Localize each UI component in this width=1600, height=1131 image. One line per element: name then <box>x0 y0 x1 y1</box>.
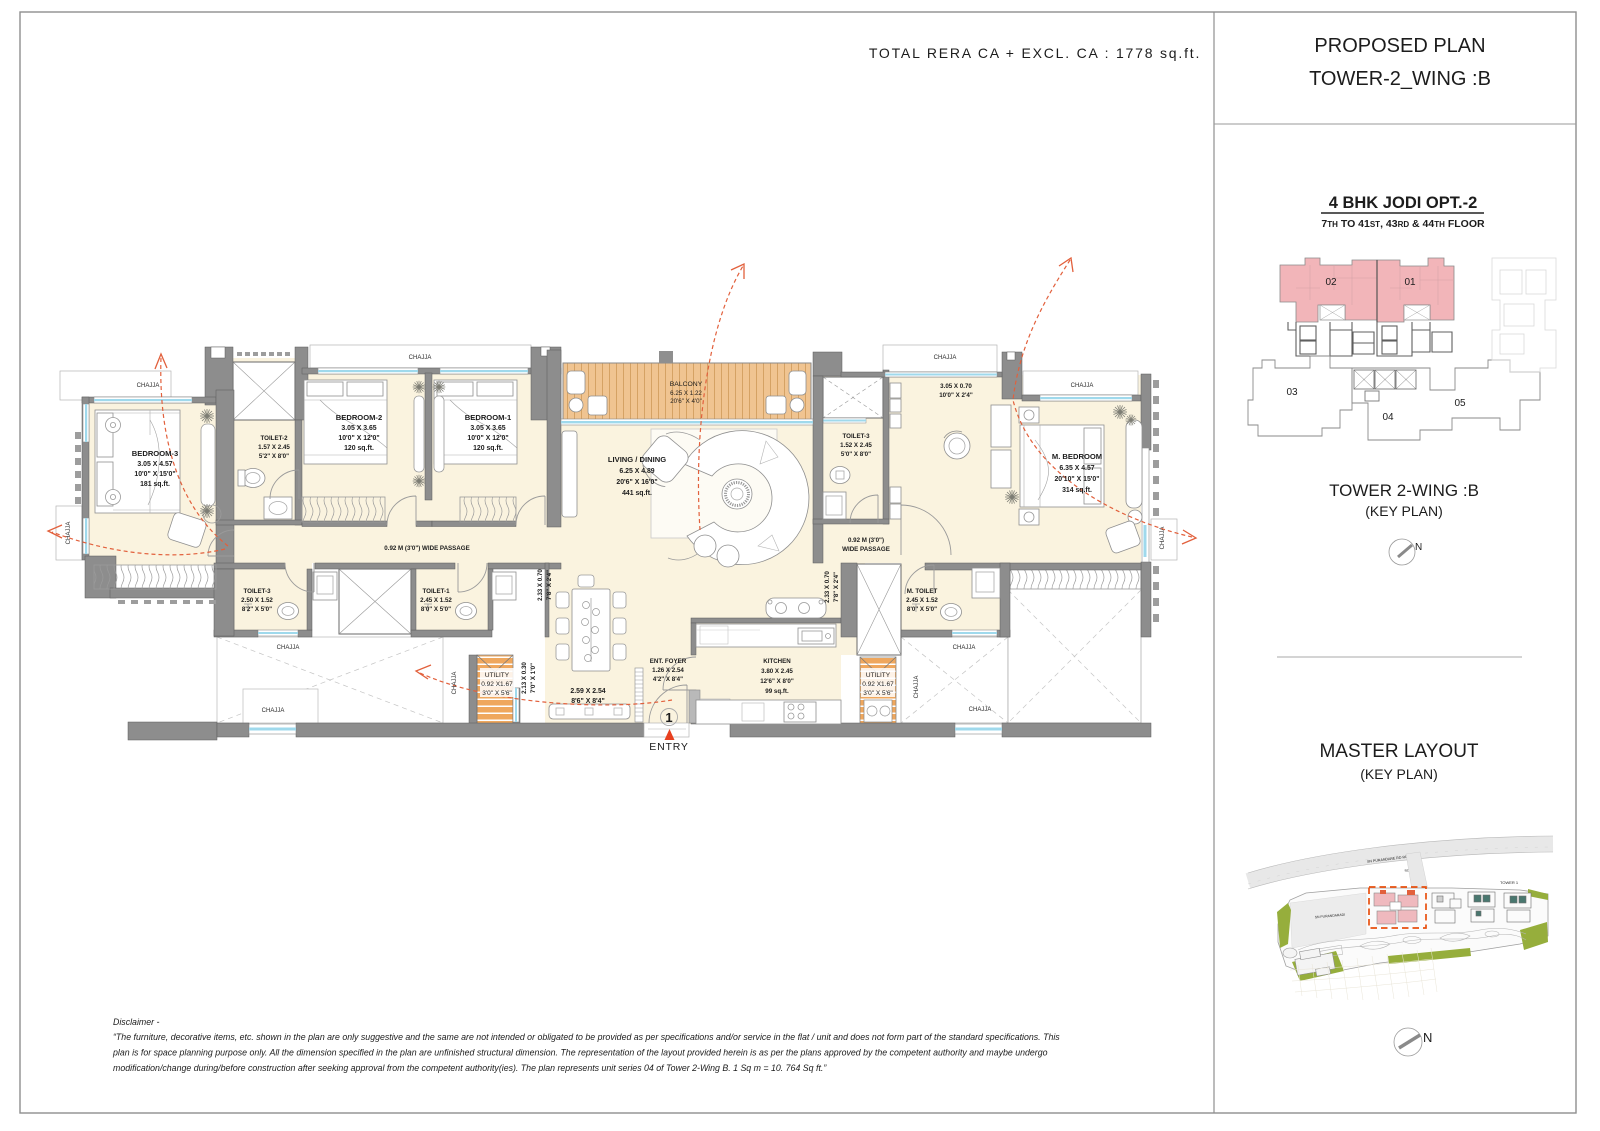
svg-text:0.92 M (3'0"): 0.92 M (3'0") <box>848 537 884 544</box>
svg-text:20'6" X 4'0": 20'6" X 4'0" <box>670 398 702 405</box>
svg-text:“The furniture, decorative ite: “The furniture, decorative items, etc. s… <box>113 1032 1060 1042</box>
svg-text:CHAJJA: CHAJJA <box>1071 383 1094 389</box>
svg-text:441 sq.ft.: 441 sq.ft. <box>622 490 652 497</box>
svg-text:ENT. FOYER: ENT. FOYER <box>650 658 687 665</box>
svg-text:TOILET-1: TOILET-1 <box>422 588 450 595</box>
svg-text:Disclaimer -: Disclaimer - <box>113 1017 159 1027</box>
svg-text:CHAJJA: CHAJJA <box>969 707 992 713</box>
svg-text:3.05 X 3.65: 3.05 X 3.65 <box>341 425 376 432</box>
svg-text:1.52 X 2.45: 1.52 X 2.45 <box>840 442 872 449</box>
svg-text:BALCONY: BALCONY <box>670 381 703 388</box>
svg-text:20'10" X 15'0": 20'10" X 15'0" <box>1054 476 1099 483</box>
svg-text:5'0" X 8'0": 5'0" X 8'0" <box>841 451 871 458</box>
svg-text:8'2" X 5'0": 8'2" X 5'0" <box>242 606 272 613</box>
svg-text:M. TOILET: M. TOILET <box>907 588 938 595</box>
svg-text:6.25 X 4.89: 6.25 X 4.89 <box>619 468 654 475</box>
svg-text:4 BHK JODI OPT.-2: 4 BHK JODI OPT.-2 <box>1329 194 1478 212</box>
svg-text:2.33 X 0.70: 2.33 X 0.70 <box>824 571 831 603</box>
svg-text:2.33 X 0.70: 2.33 X 0.70 <box>537 569 544 601</box>
svg-text:BEDROOM-2: BEDROOM-2 <box>336 413 382 422</box>
svg-text:2.45 X 1.52: 2.45 X 1.52 <box>420 597 452 604</box>
svg-text:MASTER LAYOUT: MASTER LAYOUT <box>1319 741 1478 762</box>
svg-text:modification/change during/bef: modification/change during/before constr… <box>113 1063 827 1073</box>
svg-text:WIDE PASSAGE: WIDE PASSAGE <box>842 546 890 553</box>
svg-text:2.50 X 1.52: 2.50 X 1.52 <box>241 597 273 604</box>
svg-text:plan is for space planning pur: plan is for space planning purpose only.… <box>112 1048 1048 1058</box>
svg-text:TOWER-2_WING :B: TOWER-2_WING :B <box>1309 68 1491 90</box>
svg-text:CHAJJA: CHAJJA <box>934 355 957 361</box>
svg-text:M. BEDROOM: M. BEDROOM <box>1052 452 1102 461</box>
svg-text:3.05 X 4.57: 3.05 X 4.57 <box>137 461 172 468</box>
svg-text:10'0" X 12'0": 10'0" X 12'0" <box>338 435 379 442</box>
svg-text:03: 03 <box>1286 387 1298 398</box>
svg-text:4'2" X 8'4": 4'2" X 8'4" <box>653 676 683 683</box>
svg-text:10'0" X 15'0": 10'0" X 15'0" <box>134 471 175 478</box>
svg-text:314 sq.ft.: 314 sq.ft. <box>1062 487 1092 494</box>
svg-text:0.92 M (3'0") WIDE PASSAGE: 0.92 M (3'0") WIDE PASSAGE <box>384 545 469 552</box>
svg-text:05: 05 <box>1454 398 1466 409</box>
svg-text:5'2" X 8'0": 5'2" X 8'0" <box>259 453 289 460</box>
svg-text:BEDROOM-3: BEDROOM-3 <box>132 449 178 458</box>
svg-text:UTILITY: UTILITY <box>866 672 891 679</box>
svg-text:KITCHEN: KITCHEN <box>763 658 791 665</box>
svg-text:8'0" X 5'0": 8'0" X 5'0" <box>421 606 451 613</box>
svg-text:7'8" X 2'4": 7'8" X 2'4" <box>546 570 553 600</box>
svg-text:UTILITY: UTILITY <box>485 672 510 679</box>
svg-text:ENTRY: ENTRY <box>649 741 688 753</box>
svg-text:TOWER 1: TOWER 1 <box>1500 880 1519 885</box>
svg-text:LIVING / DINING: LIVING / DINING <box>608 455 666 464</box>
svg-text:CHAJJA: CHAJJA <box>1160 527 1166 550</box>
svg-text:TOILET-3: TOILET-3 <box>842 433 870 440</box>
svg-text:2.45 X 1.52: 2.45 X 1.52 <box>906 597 938 604</box>
svg-text:N: N <box>1423 1030 1432 1045</box>
svg-text:120 sq.ft.: 120 sq.ft. <box>344 445 374 452</box>
svg-text:6.25 X 1.22: 6.25 X 1.22 <box>670 390 702 397</box>
svg-text:0.92 X1.67: 0.92 X1.67 <box>481 681 513 688</box>
svg-text:CHAJJA: CHAJJA <box>137 383 160 389</box>
svg-text:TOTAL RERA CA + EXCL. CA : 177: TOTAL RERA CA + EXCL. CA : 1778 sq.ft. <box>869 45 1201 61</box>
svg-text:6.35 X 4.57: 6.35 X 4.57 <box>1059 465 1094 472</box>
svg-text:CHAJJA: CHAJJA <box>452 672 458 695</box>
svg-text:181 sq.ft.: 181 sq.ft. <box>140 481 170 488</box>
svg-text:(KEY PLAN): (KEY PLAN) <box>1360 766 1438 782</box>
svg-text:99 sq.ft.: 99 sq.ft. <box>765 688 789 695</box>
svg-text:(KEY PLAN): (KEY PLAN) <box>1365 503 1443 519</box>
svg-text:CHAJJA: CHAJJA <box>953 645 976 651</box>
svg-text:7TH TO 41ST, 43RD & 44TH FLOOR: 7TH TO 41ST, 43RD & 44TH FLOOR <box>1321 218 1485 230</box>
svg-text:8'0" X 5'0": 8'0" X 5'0" <box>907 606 937 613</box>
svg-text:3'0" X 5'6": 3'0" X 5'6" <box>863 690 893 697</box>
svg-text:20'6" X 16'0": 20'6" X 16'0" <box>616 479 657 486</box>
svg-text:2.59 X 2.54: 2.59 X 2.54 <box>570 688 605 695</box>
svg-text:04: 04 <box>1382 412 1394 423</box>
svg-text:0.92 X1.67: 0.92 X1.67 <box>862 681 894 688</box>
svg-text:10'0" X 2'4": 10'0" X 2'4" <box>939 392 973 399</box>
svg-text:CHAJJA: CHAJJA <box>914 676 920 699</box>
svg-text:7'0" X 1'0": 7'0" X 1'0" <box>530 663 537 693</box>
svg-text:2.13 X 0.30: 2.13 X 0.30 <box>521 662 528 694</box>
svg-text:1.57 X 2.45: 1.57 X 2.45 <box>258 444 290 451</box>
svg-text:12'6" X 8'0": 12'6" X 8'0" <box>760 678 794 685</box>
svg-text:CHAJJA: CHAJJA <box>277 645 300 651</box>
svg-text:N: N <box>1415 542 1422 553</box>
svg-text:10'0" X 12'0": 10'0" X 12'0" <box>467 435 508 442</box>
svg-text:3.05 X 3.65: 3.05 X 3.65 <box>470 425 505 432</box>
svg-text:8'6" X 8'4": 8'6" X 8'4" <box>571 698 605 705</box>
svg-text:3'0" X 5'6": 3'0" X 5'6" <box>482 690 512 697</box>
svg-text:01: 01 <box>1404 277 1416 288</box>
svg-text:TOWER 2-WING :B: TOWER 2-WING :B <box>1329 481 1479 500</box>
svg-text:TOILET-2: TOILET-2 <box>260 435 288 442</box>
svg-text:CHAJJA: CHAJJA <box>262 708 285 714</box>
svg-text:7'8" X 2'4": 7'8" X 2'4" <box>833 572 840 602</box>
svg-text:CHAJJA: CHAJJA <box>409 355 432 361</box>
svg-text:BEDROOM-1: BEDROOM-1 <box>465 413 512 422</box>
svg-text:120 sq.ft.: 120 sq.ft. <box>473 445 503 452</box>
svg-text:3.80 X 2.45: 3.80 X 2.45 <box>761 668 793 675</box>
svg-text:02: 02 <box>1325 277 1337 288</box>
svg-text:PROPOSED PLAN: PROPOSED PLAN <box>1314 35 1485 57</box>
svg-text:TOILET-3: TOILET-3 <box>243 588 271 595</box>
svg-text:1.26 X 2.54: 1.26 X 2.54 <box>652 667 684 674</box>
svg-text:3.05 X 0.70: 3.05 X 0.70 <box>940 383 972 390</box>
svg-text:CHAJJA: CHAJJA <box>66 522 72 545</box>
svg-text:1: 1 <box>665 710 672 725</box>
